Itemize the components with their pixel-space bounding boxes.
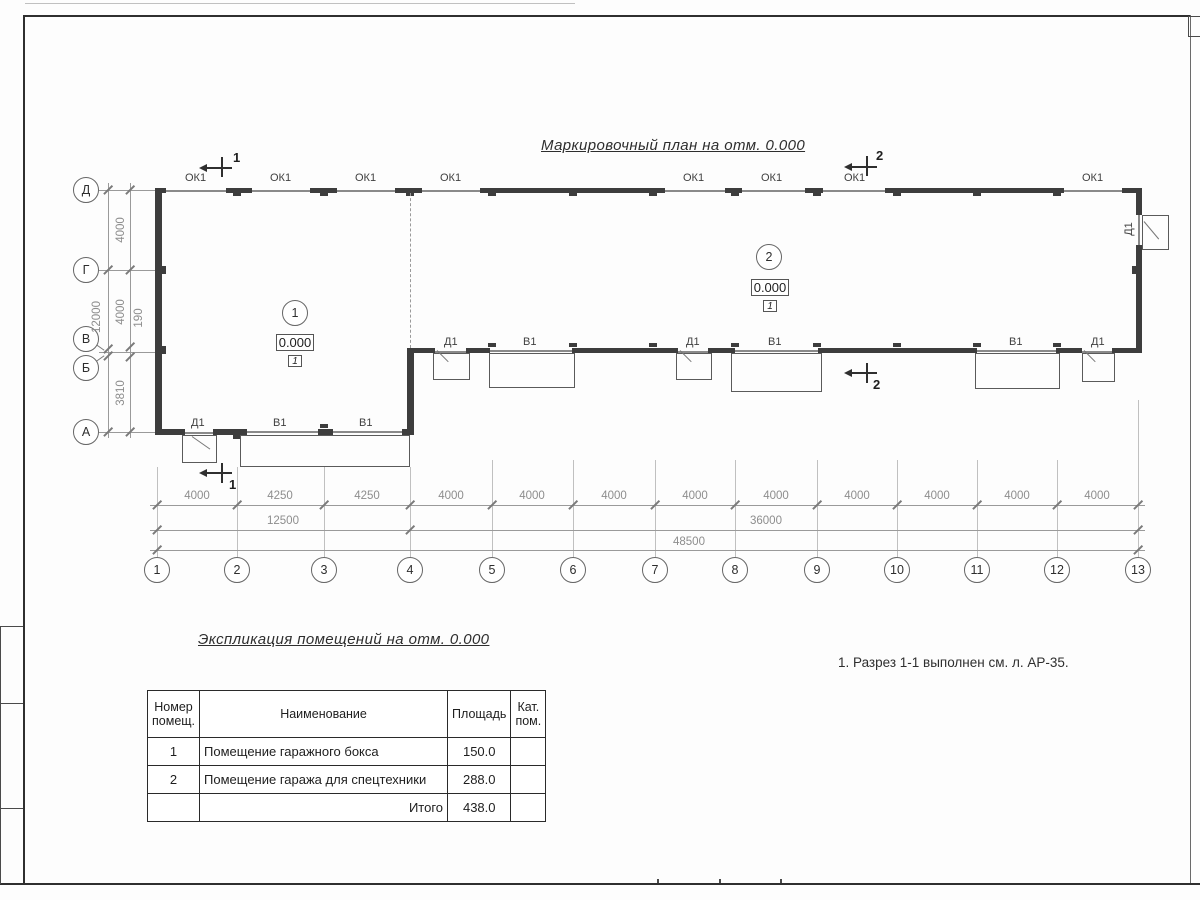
frame-right <box>1190 15 1191 884</box>
axis-circle-col: 13 <box>1125 557 1151 583</box>
axis-circle-col: 3 <box>311 557 337 583</box>
door-d1-opening <box>1138 215 1140 245</box>
dim-value: 36000 <box>746 515 786 527</box>
wall-right <box>1136 188 1142 215</box>
section-mark-1-bottom <box>206 472 232 474</box>
filing-strip-edge <box>0 626 1 884</box>
frame-left <box>23 15 25 884</box>
pilaster <box>1053 192 1061 196</box>
extension-line <box>1138 400 1139 557</box>
axis-circle-col: 2 <box>224 557 250 583</box>
axis-circle-col: 9 <box>804 557 830 583</box>
pilaster <box>649 343 657 347</box>
axis-circle-col: 8 <box>722 557 748 583</box>
pilaster <box>320 424 328 428</box>
dim-value: 4000 <box>762 490 790 502</box>
explication-table: Номер помещ. Наименование Площадь Кат. п… <box>147 690 546 822</box>
section-mark-2-bottom <box>851 372 877 374</box>
dim-value: 12500 <box>263 515 303 527</box>
wall-segment <box>818 348 977 353</box>
window-label-ok1: ОК1 <box>355 172 376 184</box>
titleblock-tick <box>657 879 659 883</box>
window-label-ok1: ОК1 <box>761 172 782 184</box>
dim-value-total: 48500 <box>669 536 709 548</box>
window-label-v1: В1 <box>523 336 536 348</box>
section-arrow <box>844 369 852 377</box>
sheet-note: 1. Разрез 1-1 выполнен см. л. АР-35. <box>838 655 1069 670</box>
axis-circle-col: 5 <box>479 557 505 583</box>
plan-title: Маркировочный план на отм. 0.000 <box>541 137 805 154</box>
pilaster <box>973 343 981 347</box>
frame-bottom <box>0 883 1200 885</box>
pilaster <box>893 343 901 347</box>
door-porch <box>433 353 470 380</box>
wall-segment <box>1112 348 1142 353</box>
axis-circle-row: Г <box>73 257 99 283</box>
pilaster <box>1053 343 1061 347</box>
window-ok1 <box>422 190 480 192</box>
titleblock-tick <box>780 879 782 883</box>
dim-value: 4000 <box>923 490 951 502</box>
dim-chain <box>130 183 131 438</box>
entrance-apron <box>240 435 410 467</box>
pilaster <box>569 343 577 347</box>
filing-strip-line1 <box>0 626 23 627</box>
dim-value: 4000 <box>183 490 211 502</box>
table-row: 1 Помещение гаражного бокса 150.0 <box>148 738 546 766</box>
extension-line <box>324 467 325 557</box>
room-number-circle: 2 <box>756 244 782 270</box>
sheet-edge-top <box>25 3 575 4</box>
door-porch <box>676 353 712 380</box>
extension-line <box>977 460 978 557</box>
room-num-cell: 2 <box>148 766 200 794</box>
room-elevation: 0.000 <box>276 334 314 351</box>
window-ok1 <box>337 190 395 192</box>
window-v1 <box>735 350 818 352</box>
door-label-d1: Д1 <box>191 417 205 429</box>
dim-value: 4000 <box>1083 490 1111 502</box>
filing-strip-line3 <box>0 808 23 809</box>
door-d1-opening <box>185 432 213 434</box>
window-label-ok1: ОК1 <box>440 172 461 184</box>
window-label-ok1: ОК1 <box>844 172 865 184</box>
door-label-d1-right: Д1 <box>1123 218 1135 240</box>
axis-circle-col: 4 <box>397 557 423 583</box>
dim-line <box>150 550 1145 551</box>
dim-value: 4000 <box>843 490 871 502</box>
window-v1 <box>977 350 1056 352</box>
wall-right <box>1136 245 1142 352</box>
window-pit <box>731 353 822 392</box>
dim-chain <box>108 183 109 438</box>
pilaster <box>649 192 657 196</box>
frame-top <box>23 15 1191 17</box>
pilaster <box>893 192 901 196</box>
window-label-v1: В1 <box>359 417 372 429</box>
dim-value: 4000 <box>518 490 546 502</box>
axis-circle-col: 12 <box>1044 557 1070 583</box>
format-corner-box <box>1188 16 1200 37</box>
dim-value: 4000 <box>681 490 709 502</box>
window-label-ok1: ОК1 <box>683 172 704 184</box>
room-number-circle: 1 <box>282 300 308 326</box>
pilaster <box>162 346 166 354</box>
dim-value: 190 <box>133 303 145 333</box>
filing-strip-line2 <box>0 703 23 704</box>
pilaster <box>569 192 577 196</box>
table-total-row: Итого 438.0 <box>148 794 546 822</box>
extension-line <box>655 460 656 557</box>
total-label-cell: Итого <box>200 794 448 822</box>
extension-line <box>817 460 818 557</box>
window-v1 <box>333 431 402 433</box>
room-cat-cell <box>511 738 546 766</box>
table-row: 2 Помещение гаража для спецтехники 288.0 <box>148 766 546 794</box>
axis-circle-row: А <box>73 419 99 445</box>
door-porch <box>1142 215 1169 250</box>
extension-line <box>157 467 158 557</box>
pilaster <box>1132 266 1136 274</box>
window-label-ok1: ОК1 <box>270 172 291 184</box>
dim-value: 4000 <box>600 490 628 502</box>
section-label: 2 <box>876 148 883 163</box>
dim-value: 4000 <box>1003 490 1031 502</box>
dim-value: 4000 <box>115 290 127 334</box>
window-ok1 <box>665 190 725 192</box>
window-ok1 <box>1064 190 1122 192</box>
extension-line <box>410 467 411 557</box>
section-label: 1 <box>233 150 240 165</box>
section-mark-1-top <box>206 167 232 169</box>
table-header-area: Площадь <box>448 691 511 738</box>
axis-4-dashed-line <box>410 193 411 348</box>
window-v1 <box>490 350 572 352</box>
room-name-cell: Помещение гаражного бокса <box>200 738 448 766</box>
axis-circle-col: 11 <box>964 557 990 583</box>
window-label-v1: В1 <box>1009 336 1022 348</box>
axis-circle-col: 6 <box>560 557 586 583</box>
window-label-v1: В1 <box>273 417 286 429</box>
door-porch <box>182 435 217 463</box>
pilaster <box>813 343 821 347</box>
pilaster <box>731 343 739 347</box>
pilaster <box>488 343 496 347</box>
room-name-cell: Помещение гаража для спецтехники <box>200 766 448 794</box>
dim-line <box>150 505 1145 506</box>
extension-line <box>897 460 898 557</box>
dim-line <box>150 530 1145 531</box>
pilaster <box>813 192 821 196</box>
floor-type-mark: 1 <box>763 300 777 312</box>
table-header-cat: Кат. пом. <box>511 691 546 738</box>
window-pit <box>975 353 1060 389</box>
room-cat-cell <box>511 766 546 794</box>
pilaster <box>973 192 981 196</box>
room-area-cell: 150.0 <box>448 738 511 766</box>
titleblock-tick <box>719 879 721 883</box>
extension-line <box>237 467 238 557</box>
dim-value: 4250 <box>266 490 294 502</box>
extension-line <box>1057 460 1058 557</box>
window-pit <box>489 353 575 388</box>
section-arrow <box>199 469 207 477</box>
drawing-sheet: Маркировочный план на отм. 0.000 <box>0 0 1200 900</box>
axis-circle-row: Д <box>73 177 99 203</box>
dim-value: 4000 <box>437 490 465 502</box>
wall-segment <box>572 348 678 353</box>
section-arrow <box>199 164 207 172</box>
total-area-cell: 438.0 <box>448 794 511 822</box>
extension-line <box>573 460 574 557</box>
pilaster <box>162 266 166 274</box>
window-ok1 <box>823 190 885 192</box>
axis-circle-col: 7 <box>642 557 668 583</box>
door-label-d1: Д1 <box>1091 336 1105 348</box>
empty-cell <box>148 794 200 822</box>
window-v1 <box>247 431 318 433</box>
door-porch <box>1082 353 1115 382</box>
wall-segment <box>155 429 185 435</box>
door-label-d1: Д1 <box>444 336 458 348</box>
section-arrow <box>844 163 852 171</box>
axis-circle-col: 1 <box>144 557 170 583</box>
room-num-cell: 1 <box>148 738 200 766</box>
extension-line <box>492 460 493 557</box>
section-label: 1 <box>229 477 236 492</box>
room-elevation: 0.000 <box>751 279 789 296</box>
window-label-ok1: ОК1 <box>1082 172 1103 184</box>
dim-value: 4250 <box>353 490 381 502</box>
section-mark-2-top <box>851 166 877 168</box>
axis-circle-col: 10 <box>884 557 910 583</box>
wall-segment <box>407 348 414 435</box>
room-area-cell: 288.0 <box>448 766 511 794</box>
pilaster <box>320 192 328 196</box>
pilaster <box>233 192 241 196</box>
window-ok1 <box>252 190 310 192</box>
dim-value: 3810 <box>115 371 127 415</box>
empty-cell <box>511 794 546 822</box>
window-ok1 <box>166 190 226 192</box>
door-label-d1: Д1 <box>686 336 700 348</box>
dim-value-total: 12000 <box>91 290 103 344</box>
pilaster <box>488 192 496 196</box>
extension-line <box>735 460 736 557</box>
window-ok1 <box>742 190 805 192</box>
window-label-v1: В1 <box>768 336 781 348</box>
table-title: Экспликация помещений на отм. 0.000 <box>198 631 489 648</box>
window-label-ok1: ОК1 <box>185 172 206 184</box>
wall-segment <box>407 348 435 353</box>
axis-circle-row: Б <box>73 355 99 381</box>
dim-value: 4000 <box>115 208 127 252</box>
wall-left <box>155 188 162 435</box>
floor-type-mark: 1 <box>288 355 302 367</box>
table-header-num: Номер помещ. <box>148 691 200 738</box>
section-label: 2 <box>873 377 880 392</box>
table-header-name: Наименование <box>200 691 448 738</box>
pilaster <box>731 192 739 196</box>
